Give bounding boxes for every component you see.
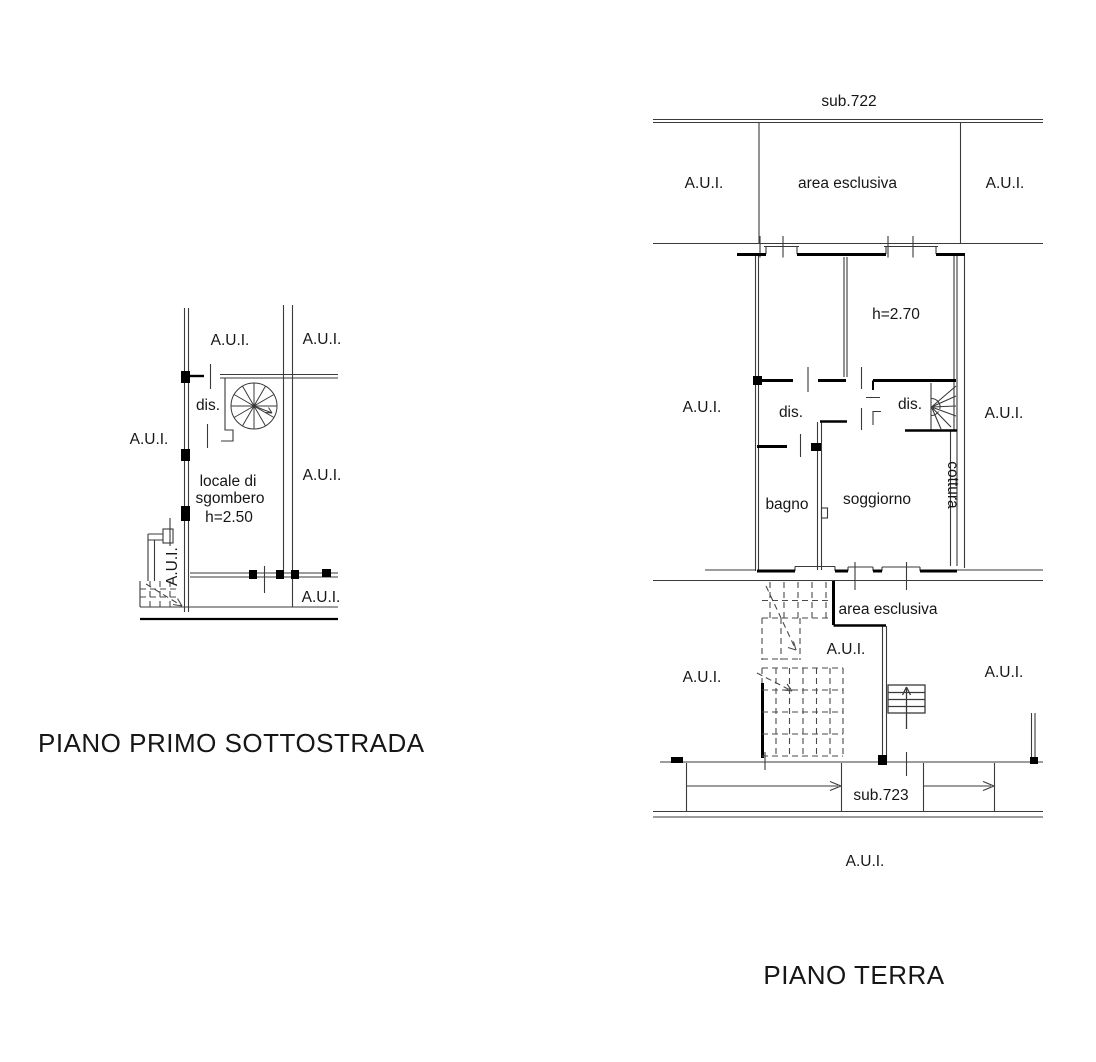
- right-plan-title: PIANO TERRA: [763, 960, 944, 990]
- room-label-bagno: bagno: [765, 496, 808, 513]
- room-height-h270: h=2.70: [872, 306, 920, 323]
- label-area-esclusiva-rear: area esclusiva: [838, 601, 937, 618]
- room-label-soggiorno: soggiorno: [843, 491, 911, 508]
- label-aui-rear-right: A.U.I.: [985, 664, 1024, 681]
- room-label-dis-left: dis.: [779, 404, 803, 421]
- floorplan-drawing: A.U.I. A.U.I. A.U.I. A.U.I. A.U.I. A.U.I…: [0, 0, 1096, 1062]
- left-plan-title: PIANO PRIMO SOTTOSTRADA: [38, 728, 425, 758]
- room-label-locale-line2: sgombero: [196, 490, 265, 507]
- spiral-staircase: [231, 383, 277, 429]
- label-aui-bottom: A.U.I.: [302, 589, 341, 606]
- label-aui-front-right: A.U.I.: [986, 175, 1025, 192]
- room-label-dis-left-plan: dis.: [196, 397, 220, 414]
- floorplan-sheet: A.U.I. A.U.I. A.U.I. A.U.I. A.U.I. A.U.I…: [0, 0, 1096, 1062]
- label-aui-street: A.U.I.: [846, 853, 885, 870]
- parcel-label-sub723: sub.723: [853, 787, 908, 804]
- label-area-esclusiva-front: area esclusiva: [798, 175, 897, 192]
- label-aui-front-left: A.U.I.: [685, 175, 724, 192]
- dimension-arrows: [687, 782, 995, 791]
- room-label-locale-line1: locale di: [200, 473, 257, 490]
- room-height-h250: h=2.50: [205, 509, 253, 526]
- room-label-cottura: cottura: [944, 461, 961, 509]
- label-aui-rear-left: A.U.I.: [683, 669, 722, 686]
- label-aui-rotated: A.U.I.: [164, 547, 181, 586]
- label-aui-top-right: A.U.I.: [303, 331, 342, 348]
- parcel-label-sub722: sub.722: [821, 93, 876, 110]
- exterior-steps: [888, 685, 925, 729]
- label-aui-right: A.U.I.: [303, 467, 342, 484]
- label-aui-top-left: A.U.I.: [211, 332, 250, 349]
- label-aui-mid-left: A.U.I.: [683, 399, 722, 416]
- right-plan-thin-walls: [653, 120, 1043, 818]
- room-label-dis-right: dis.: [898, 396, 922, 413]
- right-plan-dashed-stairs: [757, 582, 843, 757]
- label-aui-left: A.U.I.: [130, 431, 169, 448]
- label-aui-rear-inner: A.U.I.: [827, 641, 866, 658]
- label-aui-mid-right: A.U.I.: [985, 405, 1024, 422]
